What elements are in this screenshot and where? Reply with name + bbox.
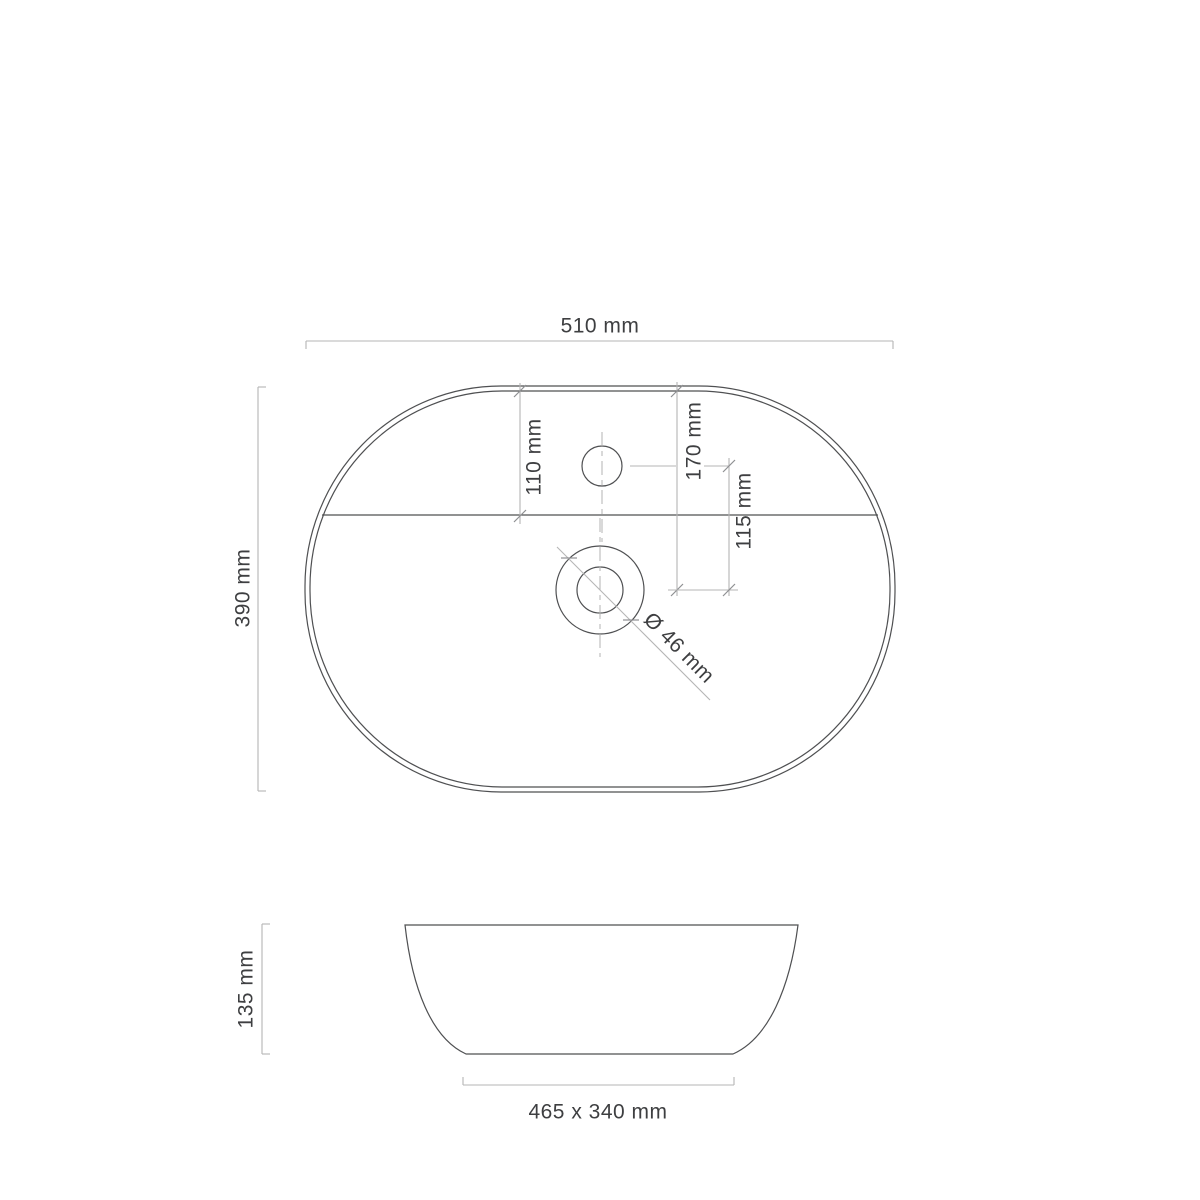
label-overall-width: 510 mm — [561, 315, 640, 338]
dim-base-footprint: 465 x 340 mm — [463, 1077, 734, 1124]
label-faucet-to-drain: 115 mm — [733, 472, 756, 549]
dim-rim-to-drain: 170 mm — [671, 382, 706, 596]
top-view: 510 mm 390 mm 110 mm 170 mm — [232, 315, 896, 793]
label-overall-depth: 390 mm — [232, 549, 255, 628]
side-profile-outline — [405, 925, 798, 1054]
label-rim-to-ledge: 110 mm — [523, 418, 546, 495]
washbasin-drawing: 510 mm 390 mm 110 mm 170 mm — [0, 0, 1200, 1200]
label-rim-to-drain: 170 mm — [683, 402, 706, 481]
dim-side-height: 135 mm — [235, 924, 271, 1054]
dim-46-diagonal-line — [557, 547, 710, 700]
label-drain-diameter: Ø 46 mm — [639, 608, 719, 688]
dim-rim-to-ledge: 110 mm — [514, 383, 546, 524]
label-side-height: 135 mm — [235, 950, 258, 1029]
dim-drain-diameter: Ø 46 mm — [557, 547, 719, 700]
label-base-footprint: 465 x 340 mm — [528, 1101, 667, 1124]
technical-drawing-canvas: 510 mm 390 mm 110 mm 170 mm — [0, 0, 1200, 1200]
dim-overall-width: 510 mm — [306, 315, 893, 350]
dim-overall-depth: 390 mm — [232, 387, 267, 791]
side-view: 135 mm 465 x 340 mm — [235, 924, 799, 1124]
